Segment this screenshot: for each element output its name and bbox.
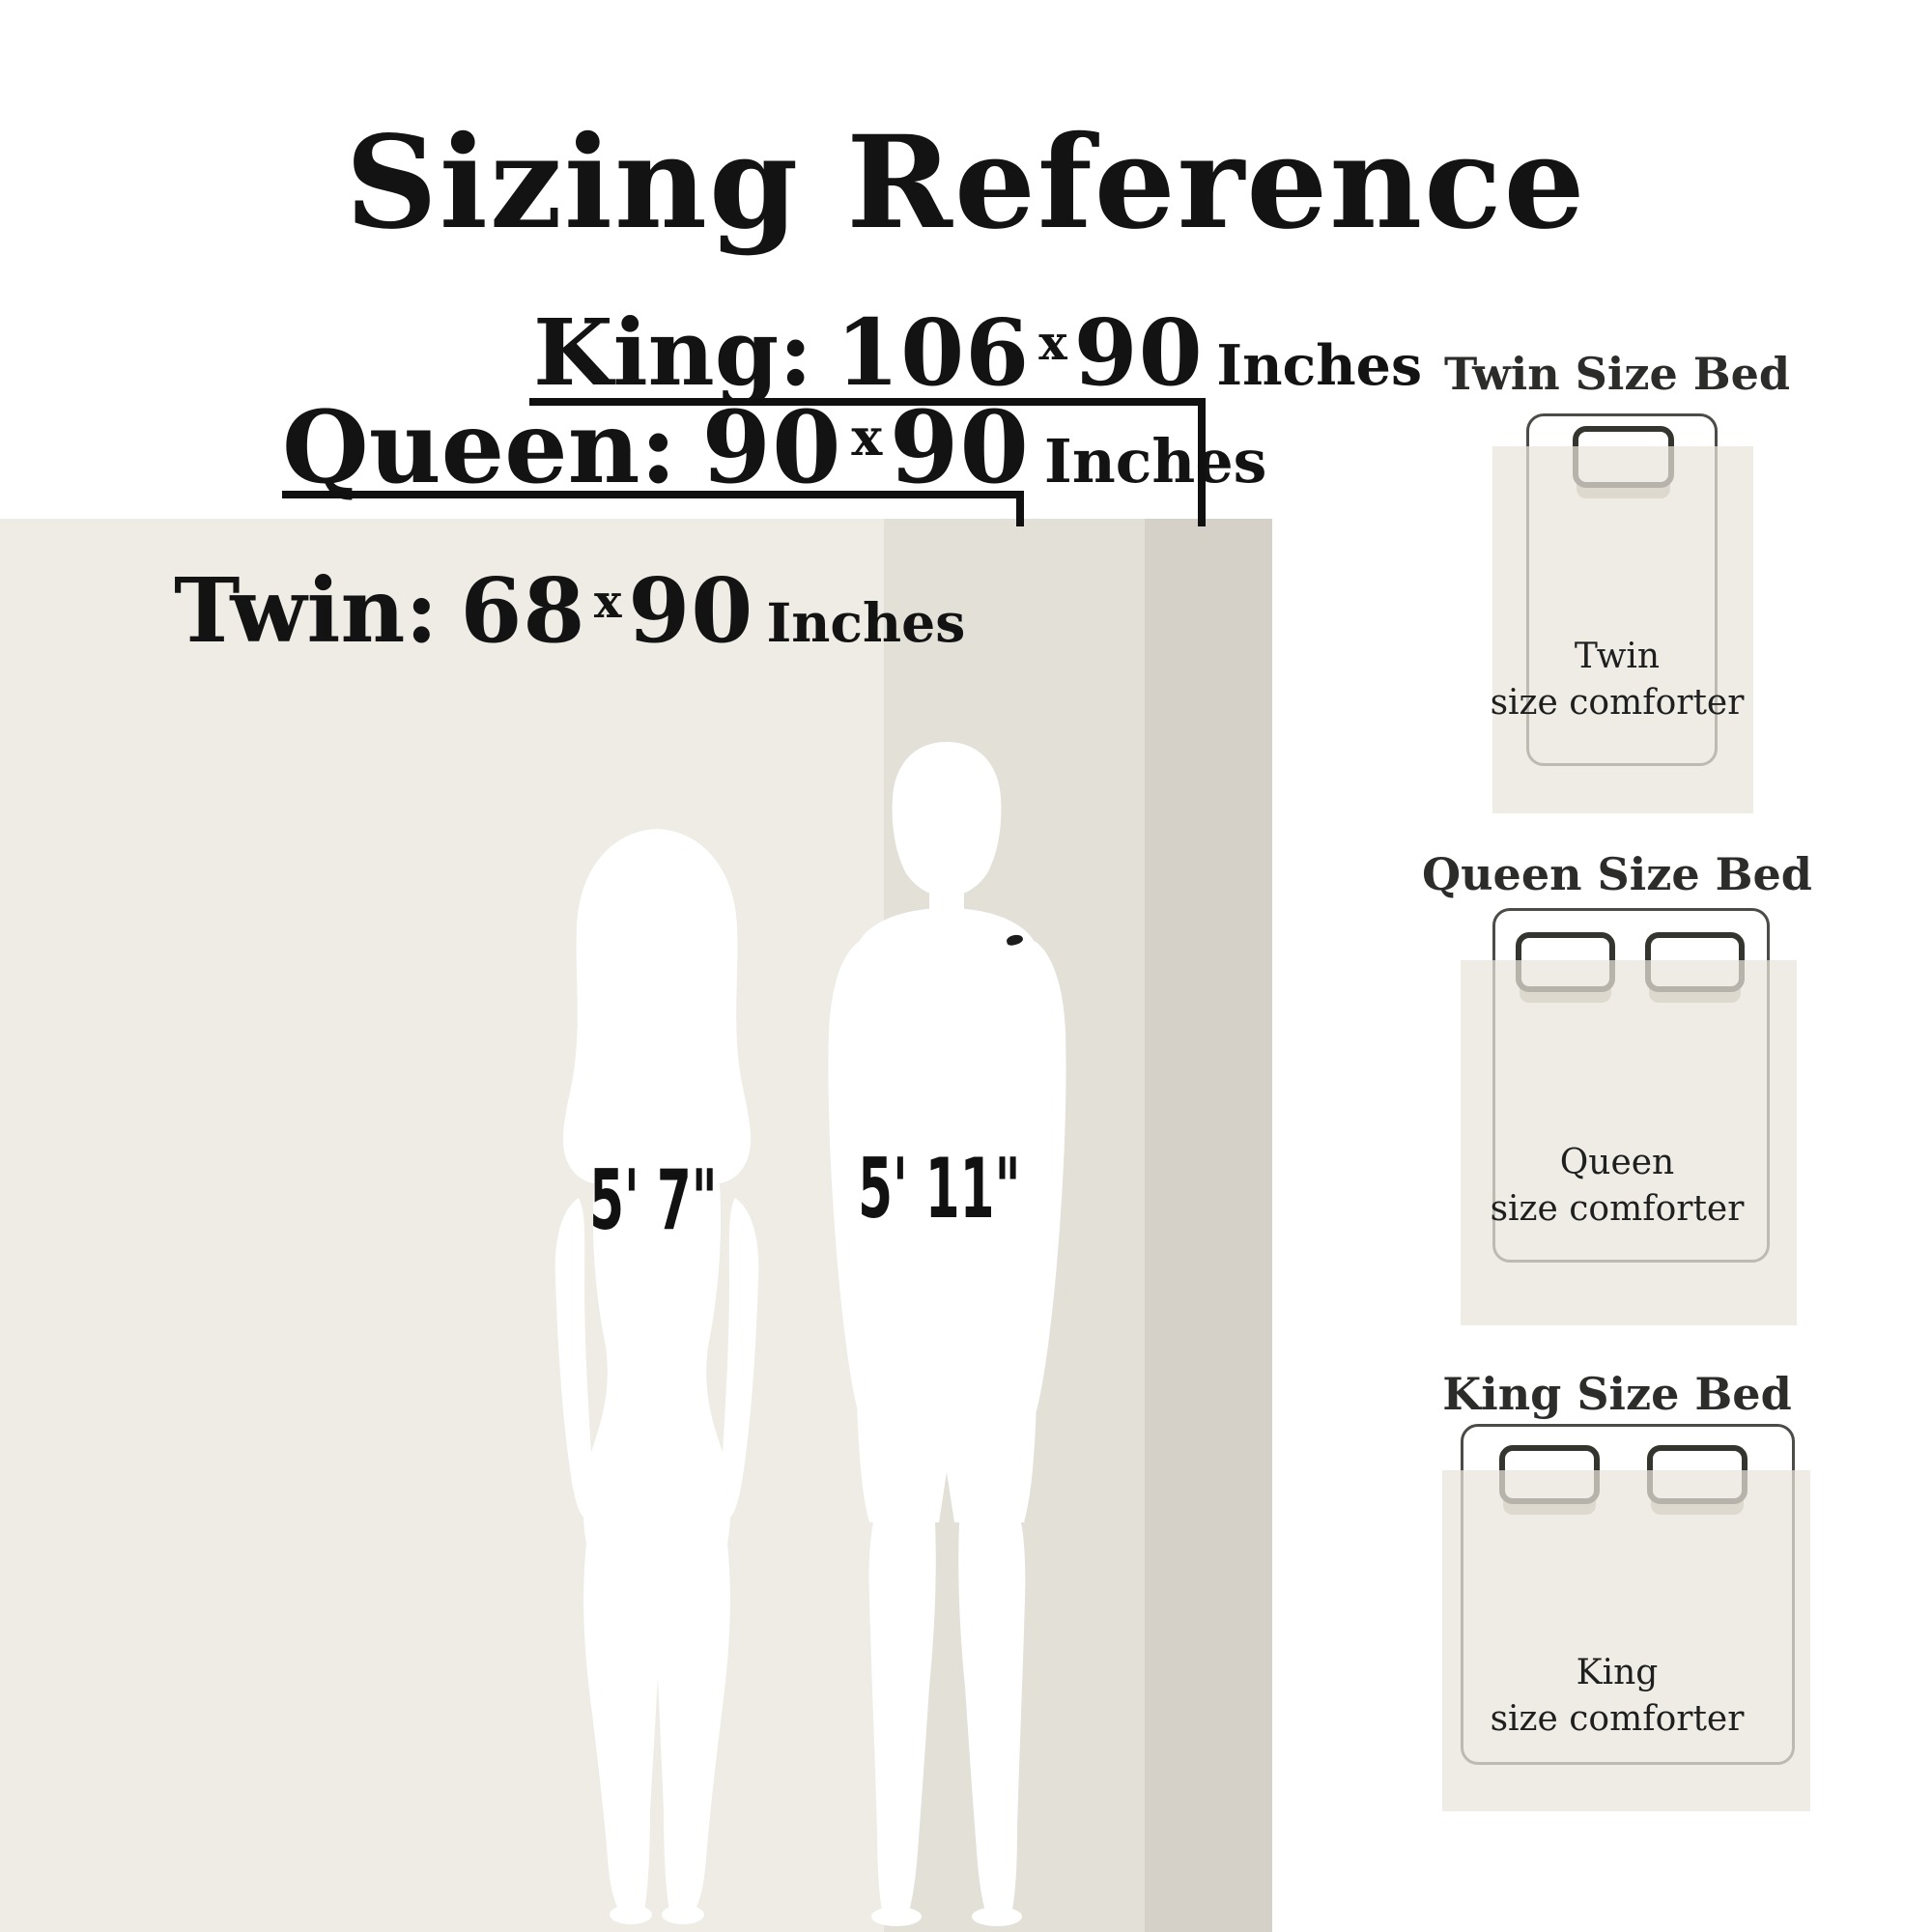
man-right-leg	[958, 1522, 1025, 1915]
king-bed-title: King Size Bed	[1399, 1372, 1835, 1416]
man-head	[893, 742, 1002, 896]
woman-height-label: 5' 7"	[537, 1159, 769, 1242]
man-left-leg	[869, 1522, 936, 1915]
man-silhouette	[800, 738, 1094, 1926]
woman-height-value: 5' 7"	[589, 1159, 717, 1242]
twin-length: 90	[628, 558, 753, 663]
twin-name: Twin:	[174, 558, 438, 663]
king-bed-diagram: King Size Bed King size comforter	[1399, 1364, 1835, 1866]
twin-bed-title: Twin Size Bed	[1399, 352, 1835, 396]
man-right-foot	[972, 1907, 1022, 1926]
sizing-reference-infographic: Sizing Reference King:106x90Inches Queen…	[0, 0, 1932, 1932]
woman-right-arm	[721, 1198, 758, 1519]
man-height-value: 5' 11"	[858, 1148, 1020, 1231]
woman-hair-head	[563, 829, 751, 1184]
page-title: Sizing Reference	[0, 108, 1932, 258]
king-size-label: King:106x90Inches	[533, 307, 1422, 399]
queen-comforter-label-line2: size comforter	[1399, 1186, 1835, 1233]
woman-legs	[583, 1544, 730, 1911]
man-shorts	[857, 1318, 1037, 1522]
woman-left-foot	[610, 1905, 652, 1924]
queen-bracket-underline	[282, 491, 1024, 498]
queen-comforter-label: Queen size comforter	[1399, 1140, 1835, 1232]
twin-comforter-label-line2: size comforter	[1399, 680, 1835, 726]
queen-width: 90	[701, 389, 841, 506]
queen-comforter-label-line1: Queen	[1399, 1140, 1835, 1186]
king-bracket-stub	[1198, 398, 1206, 526]
king-extra-width-band	[1145, 519, 1272, 1932]
queen-bracket-stub	[1016, 491, 1024, 526]
twin-unit: Inches	[766, 592, 965, 655]
man-height-label: 5' 11"	[804, 1148, 1036, 1231]
queen-bed-title: Queen Size Bed	[1399, 852, 1835, 896]
king-comforter-label-line2: size comforter	[1399, 1696, 1835, 1743]
king-comforter-label: King size comforter	[1399, 1650, 1835, 1742]
woman-silhouette	[517, 827, 797, 1924]
man-left-foot	[871, 1907, 922, 1926]
queen-size-label: Queen:90x90Inches	[282, 398, 1266, 497]
twin-comforter-label: Twin size comforter	[1399, 634, 1835, 725]
king-bracket-underline	[529, 398, 1206, 406]
queen-bed-diagram: Queen Size Bed Queen size comforter	[1399, 850, 1835, 1352]
queen-name: Queen:	[282, 389, 677, 506]
twin-size-label: Twin:68x90Inches	[174, 566, 965, 655]
woman-left-arm	[555, 1198, 593, 1519]
king-unit: Inches	[1216, 333, 1422, 398]
queen-unit: Inches	[1044, 426, 1267, 497]
king-comforter-label-line1: King	[1399, 1650, 1835, 1696]
twin-bed-diagram: Twin Size Bed Twin size comforter	[1399, 348, 1835, 850]
twin-comforter-label-line1: Twin	[1399, 634, 1835, 680]
man-torso	[850, 908, 1044, 1318]
woman-right-foot	[662, 1905, 704, 1924]
queen-length: 90	[890, 389, 1030, 506]
multiply-icon: x	[851, 407, 882, 468]
multiply-icon: x	[594, 575, 622, 629]
king-comforter-overlay	[1442, 1470, 1810, 1811]
twin-comforter-overlay	[1492, 446, 1753, 813]
king-length: 90	[1074, 299, 1204, 407]
multiply-icon: x	[1038, 315, 1066, 371]
twin-width: 68	[460, 558, 585, 663]
